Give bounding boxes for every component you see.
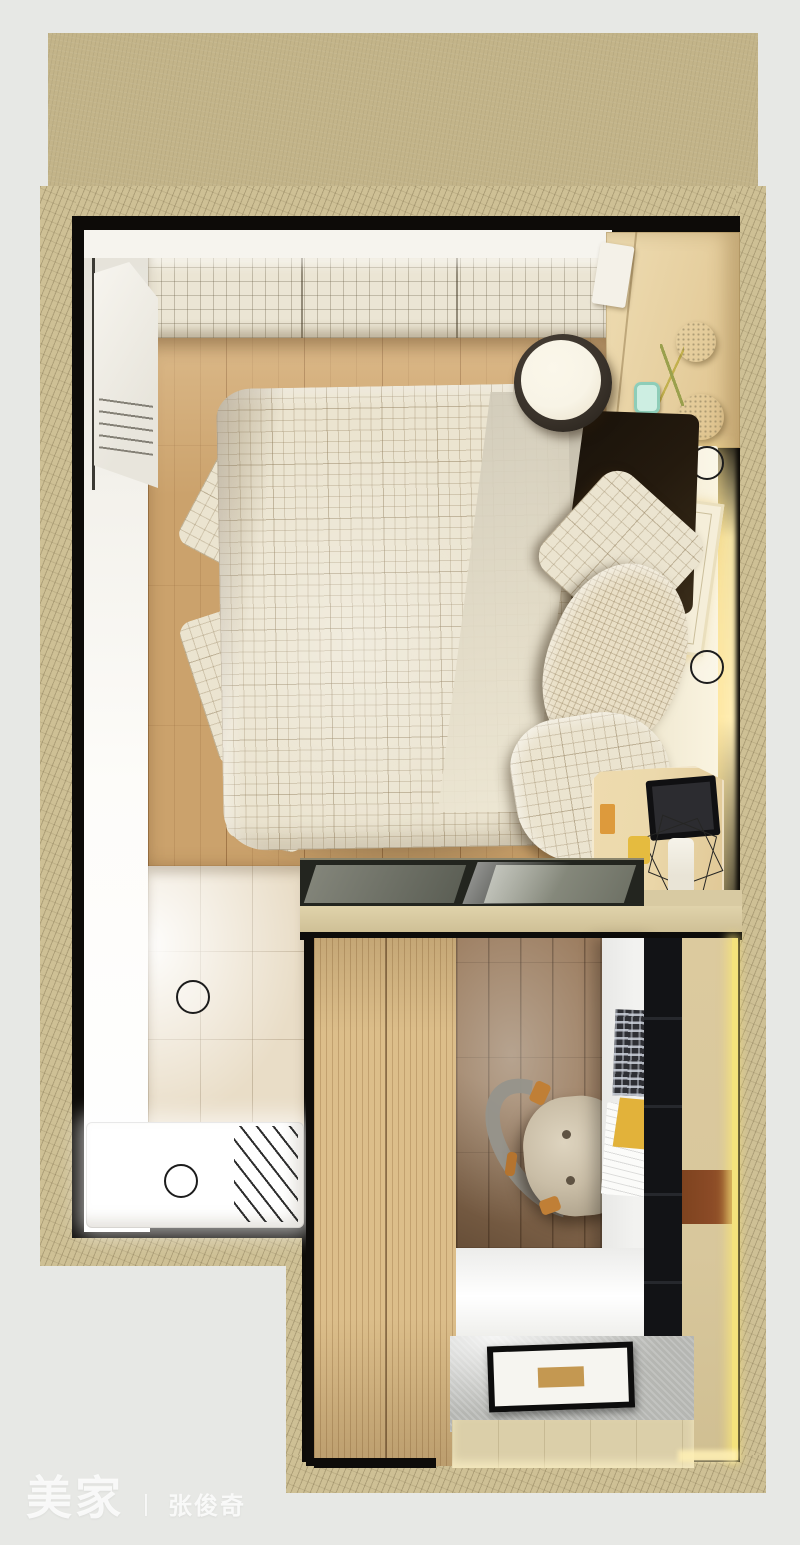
open-door: [94, 262, 158, 488]
study-far-wall-face: [456, 1248, 644, 1336]
floor-light-glow: [678, 1450, 738, 1462]
wardrobe-edge-shadow: [306, 938, 314, 1466]
downlight-circle-shower: [164, 1164, 198, 1198]
wall-right: [736, 186, 766, 1493]
framed-floor-mat: [487, 1341, 635, 1412]
round-side-table-top: [521, 340, 601, 420]
watermark-brand: 美家: [26, 1462, 124, 1528]
pompom-flower: [676, 322, 716, 362]
study-entry-floor: [452, 1420, 694, 1468]
interior-render-canvas: 美家 丨 张俊奇: [0, 0, 800, 1545]
brown-accent-band: [682, 1170, 732, 1224]
floor-drain-grate: [234, 1126, 298, 1222]
led-light-strip: [732, 938, 738, 1460]
partition-beam: [300, 906, 742, 932]
chair-tuft-button: [566, 1176, 575, 1185]
wood-wardrobe: [314, 938, 456, 1466]
chair-tuft-button: [562, 1130, 571, 1139]
wall-left: [40, 186, 76, 1266]
watermark-author: 张俊奇: [168, 1486, 246, 1521]
top-wall-face: [84, 230, 612, 258]
wardrobe-foot-shadow: [314, 1458, 436, 1468]
orange-item: [600, 804, 615, 834]
roof-slab: [48, 33, 758, 186]
downlight-circle-bathroom: [176, 980, 210, 1014]
glass-reflection: [462, 862, 627, 904]
downlight-circle-headboard: [690, 650, 724, 684]
bathroom-tile-floor: [148, 866, 304, 1128]
watermark: 美家 丨 张俊奇: [26, 1462, 246, 1528]
teal-switch: [634, 382, 660, 414]
wall-top: [40, 186, 766, 220]
mosaic-tile-band: [148, 258, 610, 338]
watermark-separator: 丨: [134, 1486, 158, 1521]
